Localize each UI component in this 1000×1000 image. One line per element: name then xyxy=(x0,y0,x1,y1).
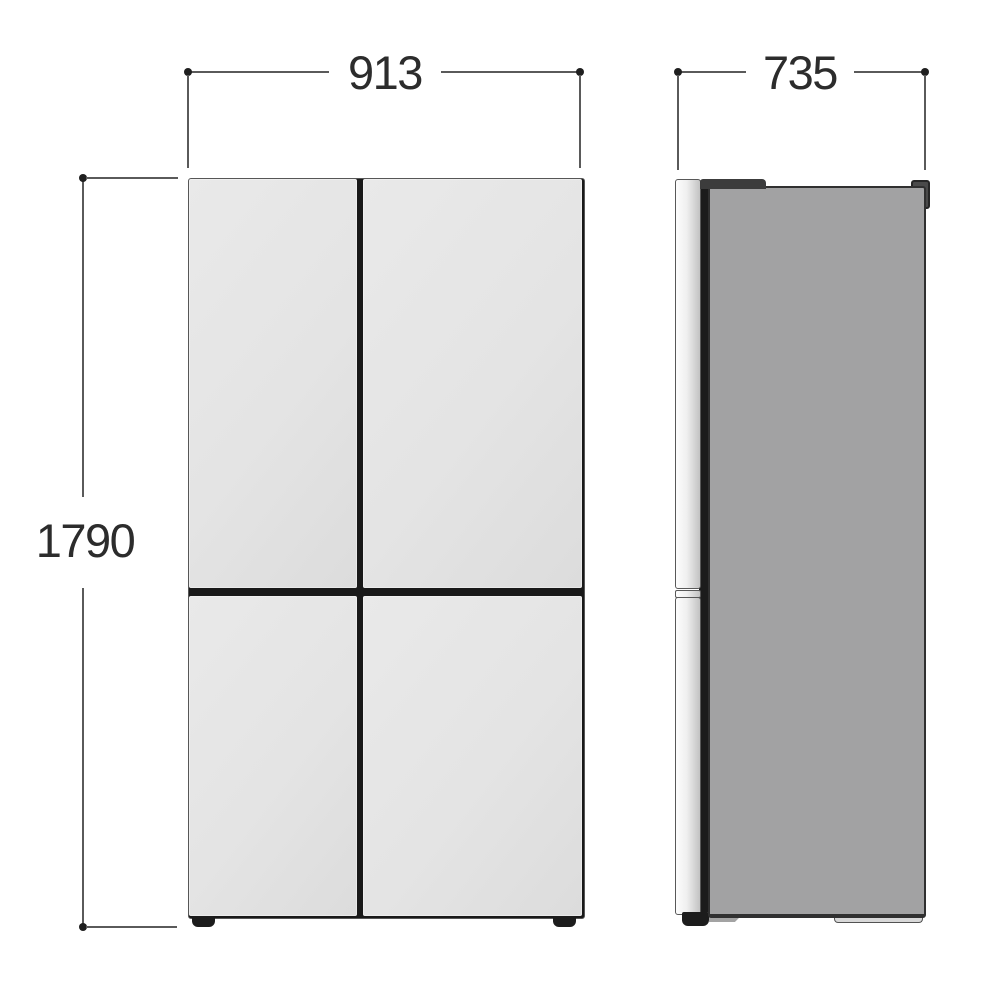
width-dim-line-right xyxy=(441,71,580,73)
depth-dim-line-left xyxy=(678,71,746,73)
depth-dim-label: 735 xyxy=(746,44,854,100)
side-cabinet-body xyxy=(708,186,926,918)
height-dim-extension-top xyxy=(86,177,178,179)
front-foot-right xyxy=(553,916,576,927)
height-dim-extension-bottom xyxy=(86,926,177,928)
width-dim-label: 913 xyxy=(329,44,441,100)
dimension-diagram-canvas: 913 735 1790 xyxy=(0,0,1000,1000)
front-door-lower-left xyxy=(189,596,357,916)
width-dim-extension-left xyxy=(187,75,189,168)
side-door-edge-upper xyxy=(675,179,701,589)
width-dim-line-left xyxy=(188,71,329,73)
side-front-foot xyxy=(682,912,709,926)
side-door-edge-lower xyxy=(675,597,701,915)
height-dim-label: 1790 xyxy=(18,512,152,568)
height-dim-line-top xyxy=(82,178,84,497)
front-foot-left xyxy=(192,916,215,927)
front-door-lower-right xyxy=(363,596,582,916)
depth-dim-line-right xyxy=(854,71,925,73)
height-dim-line-bottom xyxy=(82,588,84,927)
front-fridge-body xyxy=(188,178,585,919)
front-door-upper-left xyxy=(189,179,357,588)
depth-dim-extension-right xyxy=(924,75,926,170)
front-door-upper-right xyxy=(363,179,582,588)
depth-dim-extension-left xyxy=(677,75,679,170)
side-top-hinge-cover xyxy=(700,179,766,189)
width-dim-extension-right xyxy=(579,75,581,168)
